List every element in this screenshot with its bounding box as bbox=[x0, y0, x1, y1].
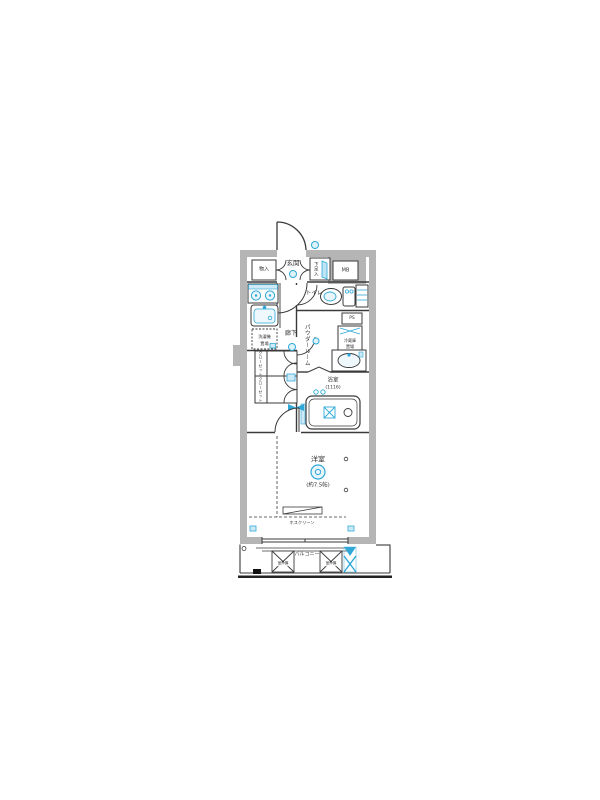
room-ceiling-light-icon bbox=[311, 465, 325, 479]
label-western-room: 洋室 bbox=[311, 457, 325, 464]
balcony-base-line bbox=[238, 576, 392, 579]
floorplan-drawing bbox=[0, 0, 600, 800]
toilet-fixture bbox=[321, 287, 356, 306]
outlet-dot-icon bbox=[344, 488, 348, 492]
room-door bbox=[275, 408, 299, 432]
hallway-light-icon bbox=[289, 344, 296, 351]
dropped-ceiling-dashes bbox=[249, 436, 346, 517]
label-closet-upper: クローゼット bbox=[259, 351, 263, 377]
shoe-box-mirror-icon bbox=[322, 261, 327, 279]
label-shoe-box: 下足入 bbox=[313, 262, 318, 277]
floorplan-canvas: 玄関 物入 下足入 MB トイレ 廊下 パウダールーム PS 冷蔵庫 置場 洗濯… bbox=[0, 0, 600, 800]
label-powder-room: パウダールーム bbox=[303, 324, 309, 366]
label-hose-clean: ホスクリーン bbox=[290, 520, 315, 524]
genkan-light-icon bbox=[290, 271, 297, 278]
kitchen-sink bbox=[251, 305, 278, 326]
label-closet-lower: クローゼット bbox=[259, 377, 263, 403]
label-western-room-size: (約7.5帖) bbox=[306, 483, 330, 488]
label-ac-unit-right: 室外機 bbox=[325, 562, 338, 566]
label-pipe-space: PS bbox=[349, 316, 355, 321]
label-laundry-2: 置場 bbox=[260, 342, 268, 346]
label-laundry-1: 洗濯機 bbox=[258, 335, 271, 339]
kitchen-stove bbox=[248, 284, 278, 303]
label-fridge-2: 置場 bbox=[346, 345, 354, 349]
label-balcony: バルコニー bbox=[295, 552, 320, 557]
toilet-cabinet bbox=[356, 285, 368, 307]
label-toilet: トイレ bbox=[306, 291, 323, 297]
entrance-light-icon bbox=[312, 242, 319, 249]
hall-outlet-icon bbox=[287, 374, 295, 381]
powder-light-icon bbox=[313, 338, 319, 344]
label-bathroom: 浴室 bbox=[327, 378, 338, 384]
shower-control-icon bbox=[314, 390, 318, 394]
balcony-corner-block bbox=[253, 569, 261, 574]
sliding-window bbox=[256, 537, 354, 551]
hall-door bbox=[277, 283, 307, 313]
label-storage: 物入 bbox=[259, 268, 269, 273]
washbasin bbox=[332, 350, 366, 371]
drain-icon bbox=[242, 547, 246, 551]
outlet-icon bbox=[250, 526, 256, 531]
balcony-outline bbox=[240, 545, 390, 574]
label-ac-unit-left: 室外機 bbox=[277, 562, 290, 566]
entrance-door bbox=[277, 222, 306, 250]
bathroom-folding-door bbox=[308, 367, 330, 372]
label-genkan: 玄関 bbox=[287, 260, 300, 267]
label-bathroom-size: (1116) bbox=[325, 386, 340, 391]
outlet-dot-icon bbox=[344, 457, 348, 461]
outlet-icon bbox=[348, 526, 354, 531]
bathtub bbox=[306, 396, 360, 429]
label-hallway: 廊下 bbox=[285, 331, 297, 337]
label-meter-box: MB bbox=[342, 268, 350, 273]
label-fridge-1: 冷蔵庫 bbox=[344, 339, 356, 343]
hose-clean-rod bbox=[283, 507, 322, 514]
